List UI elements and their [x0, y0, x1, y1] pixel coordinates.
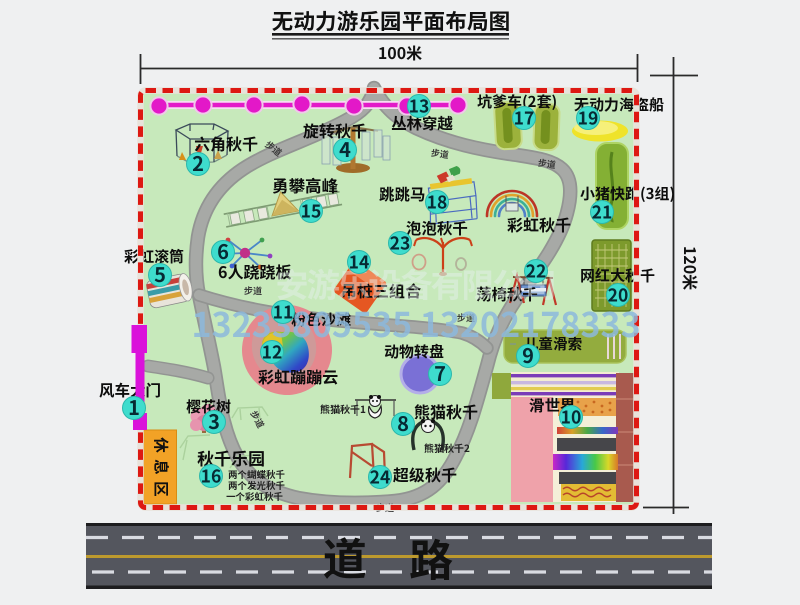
svg-text:5: 5: [154, 259, 166, 288]
svg-text:18: 18: [427, 189, 448, 214]
svg-text:120米: 120米: [679, 246, 703, 290]
svg-text:19: 19: [578, 105, 599, 130]
svg-text:熊猫秋千2: 熊猫秋千2: [424, 440, 470, 455]
svg-text:24: 24: [370, 464, 391, 489]
svg-text:无动力游乐园平面布局图: 无动力游乐园平面布局图: [272, 5, 511, 36]
svg-text:熊猫秋千1: 熊猫秋千1: [320, 401, 366, 416]
svg-text:2: 2: [192, 148, 204, 177]
svg-text:泡泡秋千: 泡泡秋千: [406, 217, 469, 239]
svg-text:4: 4: [339, 134, 351, 163]
svg-text:步道: 步道: [537, 156, 557, 171]
svg-text:15: 15: [301, 198, 322, 223]
svg-text:20: 20: [608, 282, 629, 307]
svg-text:100米: 100米: [378, 40, 422, 64]
svg-text:21: 21: [592, 199, 613, 224]
svg-text:11: 11: [273, 299, 294, 324]
svg-text:彩虹蹦蹦云: 彩虹蹦蹦云: [258, 364, 338, 388]
svg-text:7: 7: [434, 358, 446, 387]
svg-text:14: 14: [349, 249, 370, 274]
svg-text:彩虹秋千: 彩虹秋千: [507, 212, 571, 236]
svg-text:1: 1: [128, 392, 140, 421]
svg-text:10: 10: [561, 404, 582, 429]
svg-text:23: 23: [390, 230, 411, 255]
svg-text:区: 区: [151, 481, 173, 497]
svg-text:6: 6: [217, 236, 229, 265]
svg-text:跳跳马: 跳跳马: [379, 183, 426, 205]
svg-text:勇攀高峰: 勇攀高峰: [272, 173, 338, 197]
svg-text:9: 9: [522, 340, 534, 369]
svg-text:路: 路: [409, 525, 453, 589]
svg-text:16: 16: [201, 463, 222, 488]
svg-text:超级秋千: 超级秋千: [393, 462, 457, 486]
svg-text:13233805535 13202178333: 13233805535 13202178333: [191, 298, 640, 347]
svg-text:休: 休: [151, 436, 173, 453]
svg-text:3: 3: [208, 406, 220, 435]
svg-text:22: 22: [526, 258, 547, 283]
svg-text:13: 13: [409, 93, 430, 118]
svg-text:12: 12: [262, 339, 283, 364]
svg-text:步道: 步道: [430, 146, 450, 161]
svg-text:道: 道: [323, 524, 367, 588]
svg-text:8: 8: [397, 408, 409, 437]
svg-text:17: 17: [514, 105, 535, 130]
svg-text:息: 息: [151, 459, 173, 475]
svg-text:旋转秋千: 旋转秋千: [303, 118, 367, 142]
svg-text:步道: 步道: [244, 284, 262, 297]
svg-text:一个彩虹秋千: 一个彩虹秋千: [226, 489, 283, 503]
